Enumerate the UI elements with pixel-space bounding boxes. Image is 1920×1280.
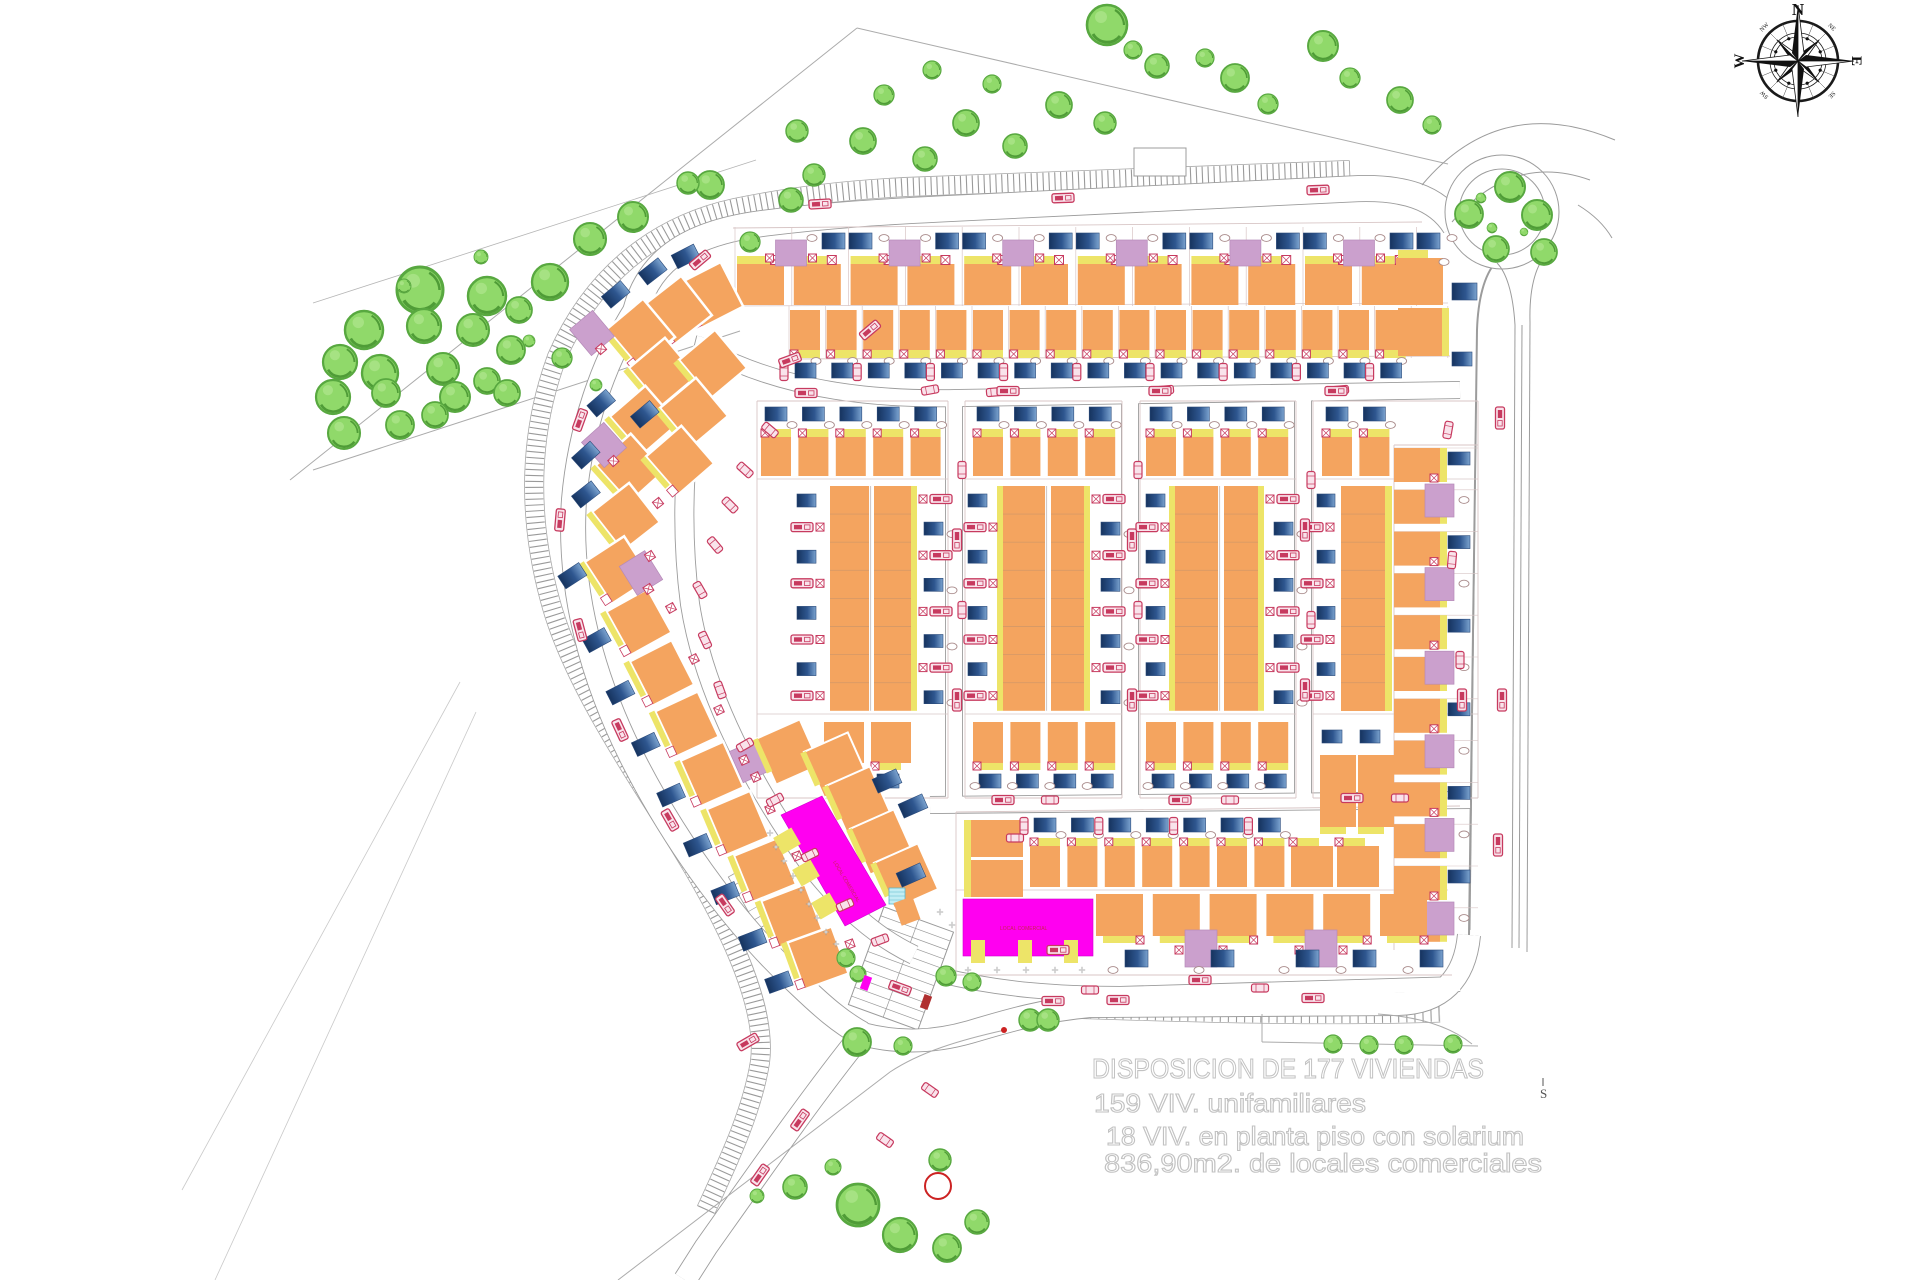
- svg-text:836,90m2. de locales comercial: 836,90m2. de locales comerciales: [1104, 1148, 1542, 1178]
- svg-text:E: E: [1848, 56, 1864, 66]
- svg-text:N: N: [1792, 0, 1805, 19]
- svg-text:W: W: [1732, 54, 1748, 69]
- svg-text:LOCAL COMERCIAL: LOCAL COMERCIAL: [1000, 926, 1048, 932]
- svg-text:18 VIV. en planta piso con sol: 18 VIV. en planta piso con solarium: [1106, 1121, 1524, 1151]
- svg-text:DISPOSICION DE 177 VIVIENDAS: DISPOSICION DE 177 VIVIENDAS: [1092, 1053, 1484, 1084]
- svg-text:S: S: [1540, 1086, 1547, 1101]
- svg-text:159 VIV. unifamiliares: 159 VIV. unifamiliares: [1094, 1088, 1366, 1118]
